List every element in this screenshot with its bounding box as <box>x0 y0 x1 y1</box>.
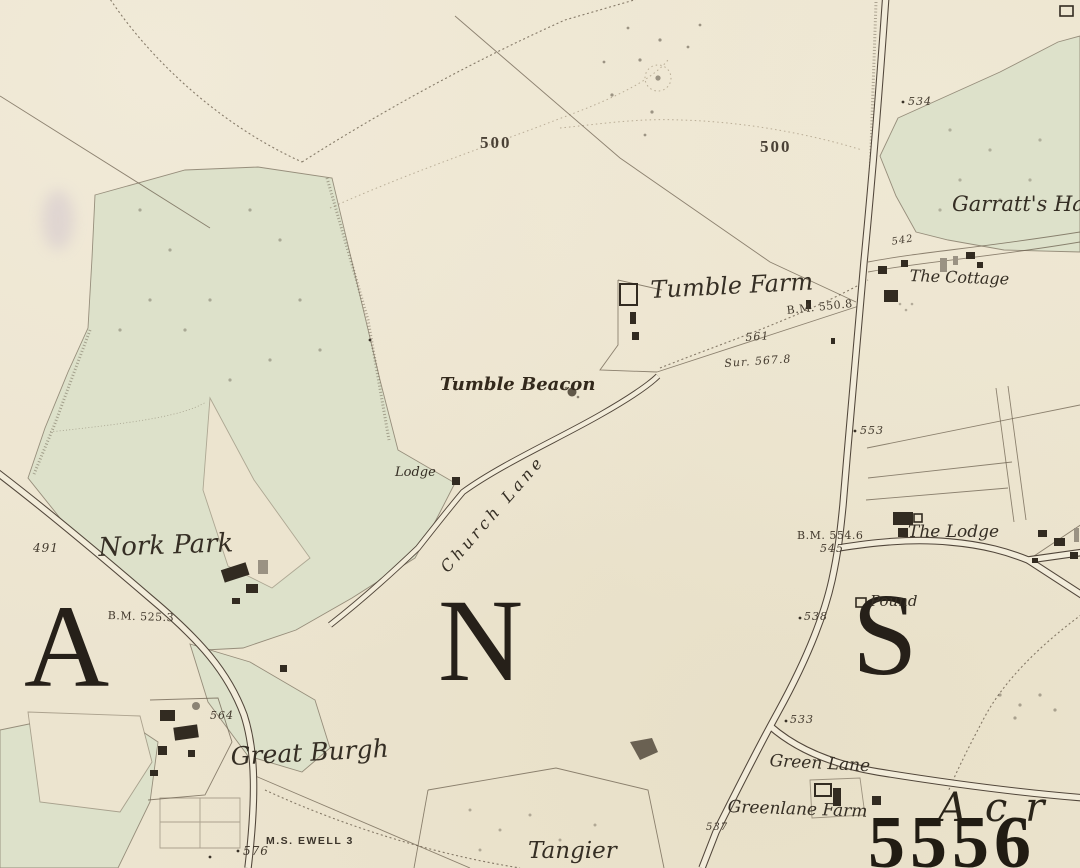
contour-label-500-east: 500 <box>760 138 792 155</box>
label-tumble-beacon: Tumble Beacon <box>440 376 595 394</box>
spot-height-491: 491 <box>33 542 59 554</box>
parcel-number-5556: 5556 <box>868 806 1036 868</box>
spot-height-564: 564 <box>210 710 234 721</box>
milestone-ewell-3: M.S. EWELL 3 <box>266 836 354 847</box>
spot-height-561: 561 <box>745 330 770 343</box>
garratts-parkland <box>880 36 1080 252</box>
benchmark-554-6: B.M. 554.6 <box>797 530 863 541</box>
label-greenlane-farm: Greenlane Farm <box>727 799 867 821</box>
spot-height-537: 537 <box>706 823 728 833</box>
spot-height-538: 538 <box>804 611 828 622</box>
spot-height-553: 553 <box>860 425 884 436</box>
contour-label-500-west: 500 <box>480 134 512 151</box>
county-letter-n: N <box>438 582 523 700</box>
parkland-areas <box>0 36 1080 868</box>
contour-lines <box>330 60 862 208</box>
label-pound: Pound <box>870 594 917 609</box>
label-the-lodge: The Lodge <box>908 524 999 541</box>
benchmark-525-3: B.M. 525.3 <box>108 610 175 623</box>
label-lodge: Lodge <box>395 466 436 479</box>
spot-height-534: 534 <box>908 96 932 107</box>
main-right-road <box>702 0 886 868</box>
label-garratts-hall: Garratt's Ha <box>952 194 1080 215</box>
ink-smudge <box>42 190 74 250</box>
label-tangier: Tangier <box>528 840 617 863</box>
map-canvas[interactable]: 500 500 534 Garratt's Ha 542 The Cottage… <box>0 0 1080 868</box>
county-letter-a: A <box>24 588 109 706</box>
label-the-cottage: The Cottage <box>909 268 1009 287</box>
spot-height-545: 545 <box>820 543 844 554</box>
spot-height-533: 533 <box>790 714 814 725</box>
label-nork-park: Nork Park <box>98 530 234 561</box>
map-drawing <box>0 0 1080 868</box>
nork-park-area <box>28 167 455 650</box>
spot-height-576: 576 <box>243 845 269 857</box>
